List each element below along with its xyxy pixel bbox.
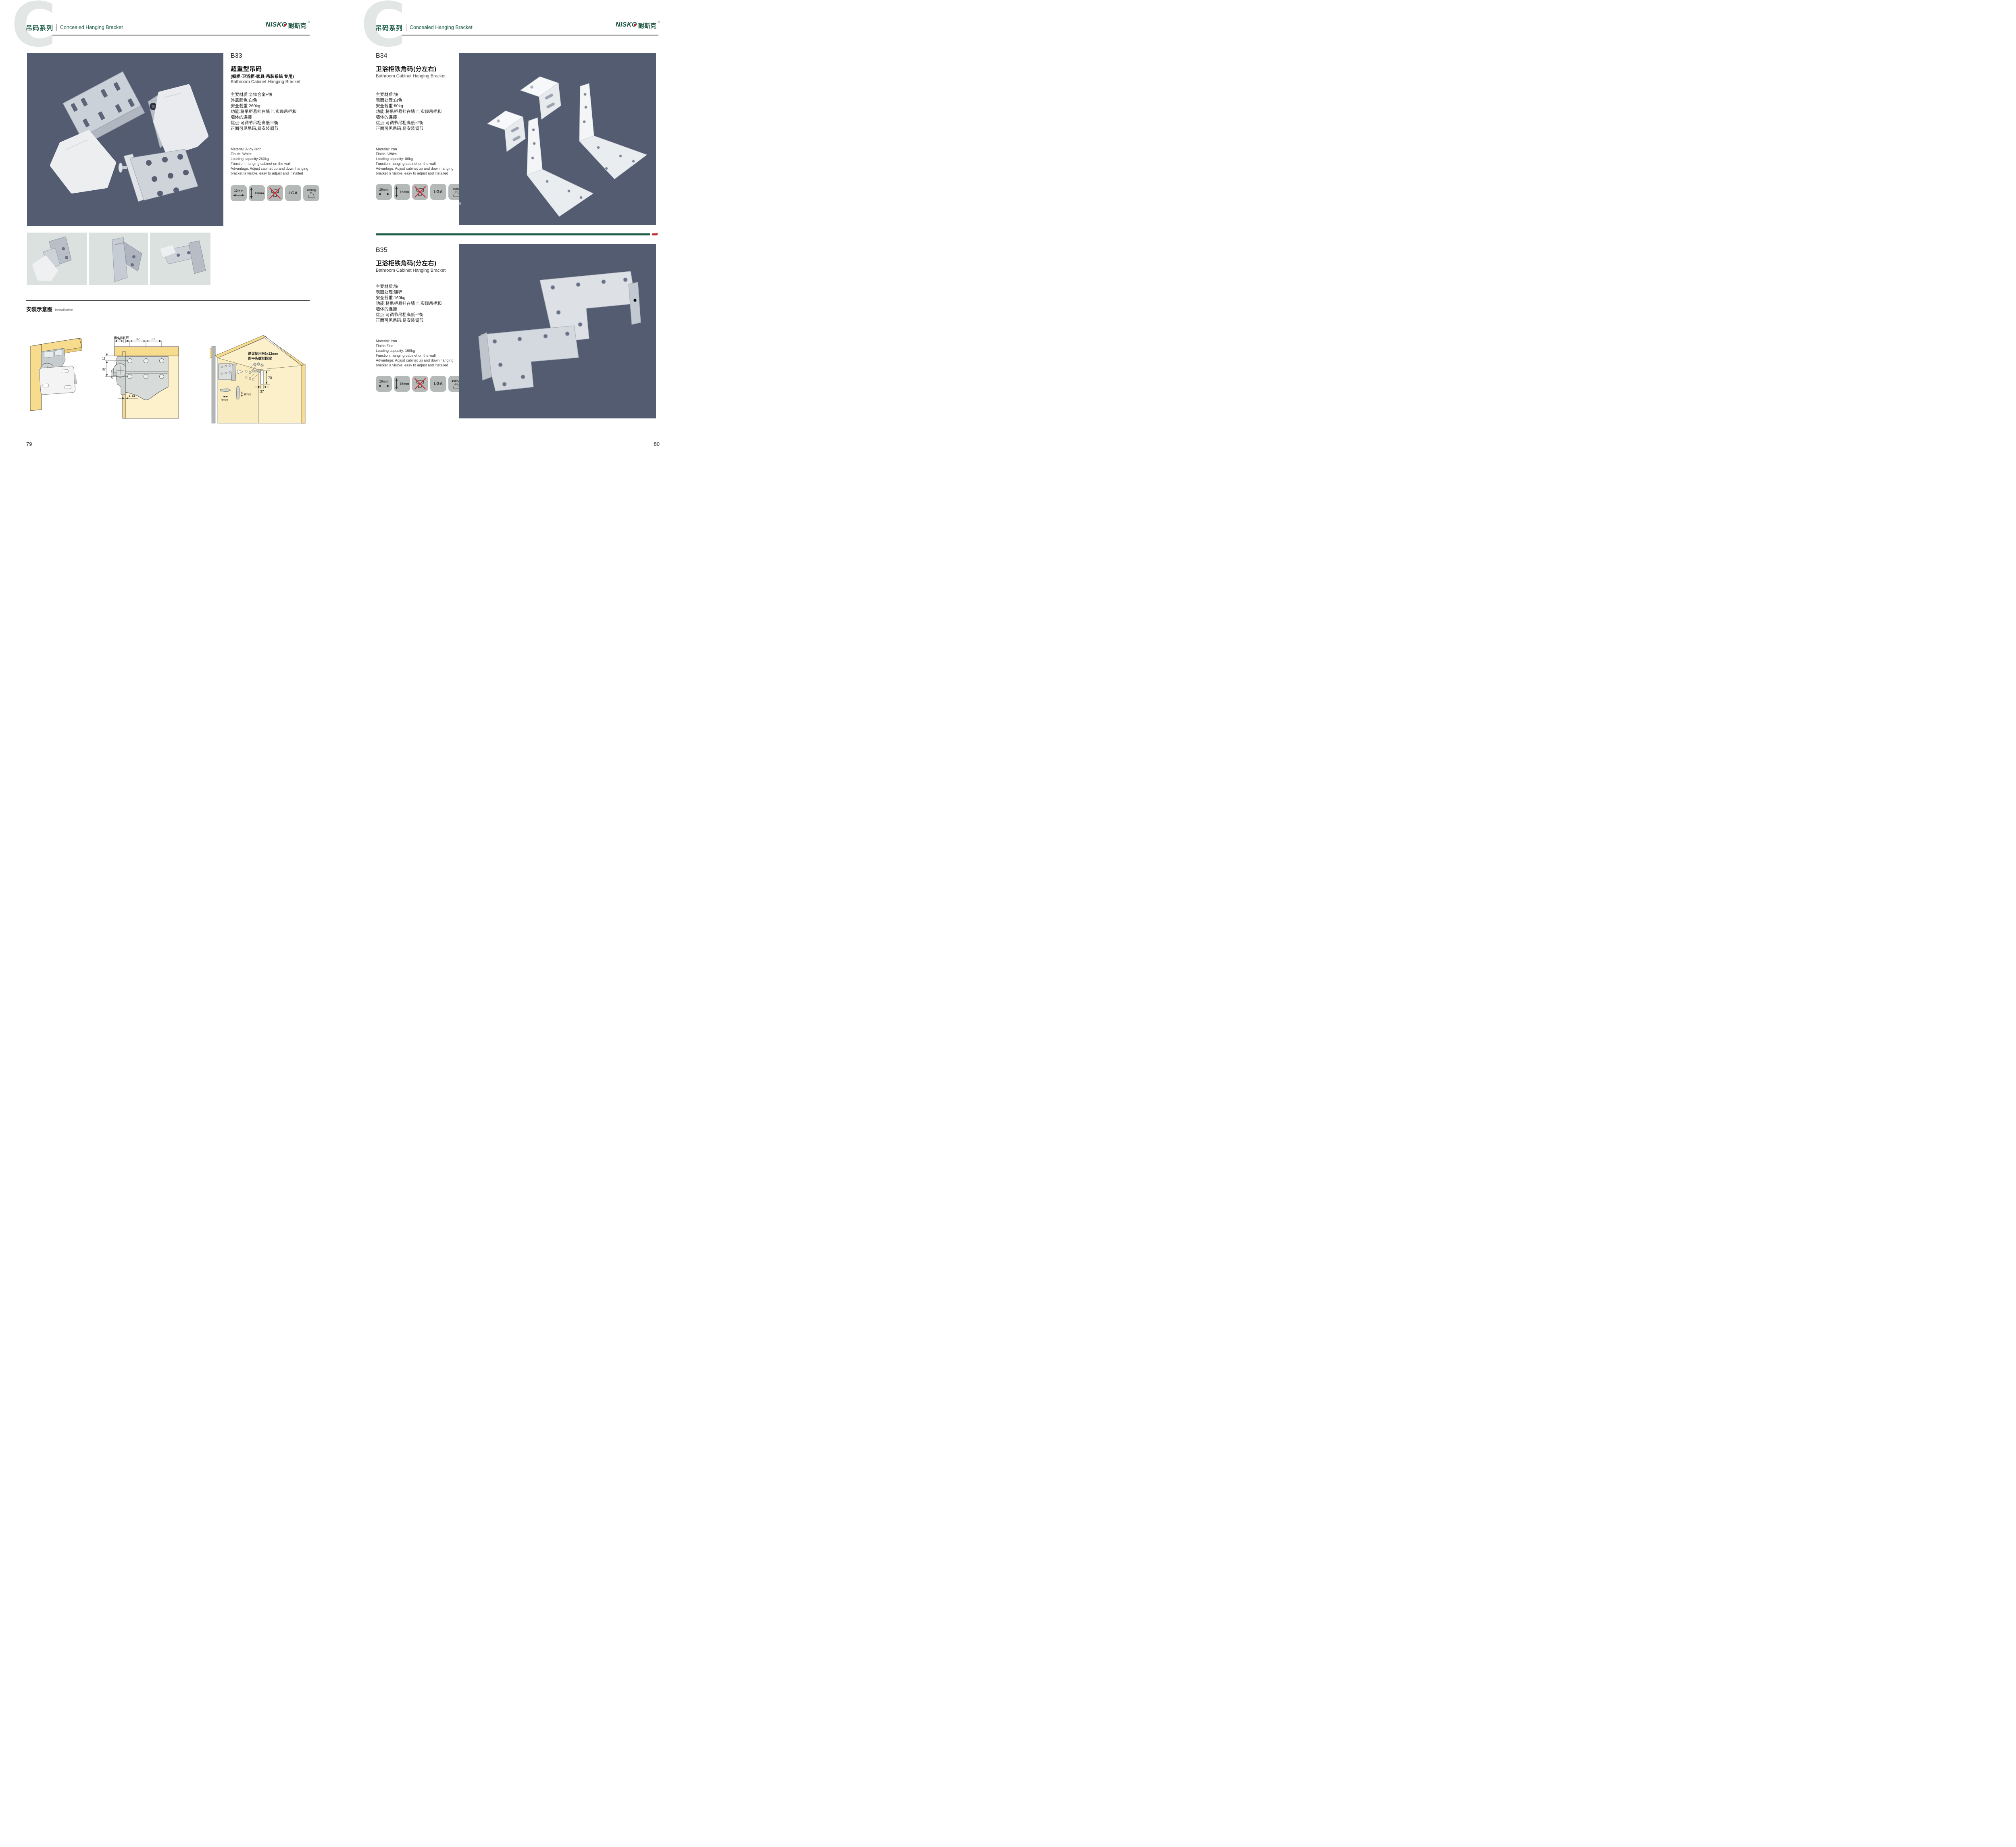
page-header: 吊码系列 Concealed Hanging Bracket — [375, 23, 473, 32]
no-drill-badge — [412, 184, 428, 200]
dim-11: 11 — [102, 357, 106, 360]
product-photo-b34 — [459, 53, 656, 225]
lga-cert-badge: LGA — [285, 185, 301, 201]
catalog-spread: C 吊码系列 Concealed Hanging Bracket NISKO 耐… — [0, 0, 676, 462]
feature-badges-b34: 10mm 15mm LGA 80Kg — [376, 184, 464, 200]
product-photo-b33 — [27, 53, 223, 226]
specs-cn: 主要材质:铁 表面处理:白色 安全载重:80kg 功能:将吊柜悬挂在墙上,实现吊… — [376, 92, 460, 131]
screw-note-line2: 的平头螺丝固定 — [248, 356, 272, 360]
screw-note-line1: 建议使用M6x12mm — [248, 352, 279, 356]
header-divider — [56, 24, 57, 31]
installation-diagram-perspective — [27, 338, 102, 423]
brand-red-dot-icon — [634, 24, 636, 26]
vertical-arrow-icon — [395, 186, 398, 198]
thumbnail-2 — [89, 233, 148, 285]
registered-mark: ® — [658, 21, 660, 24]
brand-name-cn: 耐斯克 — [288, 21, 306, 30]
header-rule — [52, 35, 310, 35]
crossed-drill-icon — [413, 185, 427, 199]
load-capacity-badge: 260Kg — [303, 185, 319, 201]
product-title-en: Bathroom Cabinet Hanging Bracket — [231, 79, 300, 84]
product-code: B35 — [376, 247, 387, 254]
installation-heading: 安装示意图 Installation — [26, 305, 73, 313]
horizontal-arrow-icon — [378, 384, 389, 388]
brand-wordmark: NISKO — [616, 21, 637, 29]
product-title-en: Bathroom Cabinet Hanging Bracket — [376, 268, 446, 273]
product-title-en: Bathroom Cabinet Hanging Bracket — [376, 74, 446, 79]
vertical-arrow-icon — [250, 187, 253, 199]
product-photo-b33-art — [27, 53, 223, 226]
header-divider — [406, 24, 406, 31]
product-title-cn: 超重型吊码 — [231, 64, 262, 73]
dim-range: 4-14 — [129, 394, 135, 398]
specs-en: Material: Iron Finish:Zinc Loading capac… — [376, 339, 462, 368]
dim-78: 78 — [268, 376, 272, 380]
dim-9a: 9mm — [221, 398, 228, 402]
panel-thickness-badge: 13mm — [249, 185, 265, 201]
specs-cn: 主要材质:铁 表面处理:镀锌 安全载重:160kg 功能:将吊柜悬挂在墙上,实现… — [376, 284, 460, 323]
product-subtitle-cn: (橱柜·卫浴柜·家具·吊装系统 专用) — [231, 73, 294, 79]
lga-cert-badge: LGA — [430, 184, 446, 200]
product-code: B34 — [376, 52, 387, 60]
series-title-en: Concealed Hanging Bracket — [60, 25, 123, 30]
page-number-right: 80 — [649, 441, 660, 447]
horizontal-arrow-icon — [233, 193, 244, 197]
series-title-en: Concealed Hanging Bracket — [410, 25, 473, 30]
lga-cert-badge: LGA — [430, 376, 446, 392]
dim-32b: 32 — [152, 337, 155, 341]
header-rule — [402, 35, 658, 35]
weight-icon — [306, 192, 317, 198]
specs-en: Material: Iron Finish: White Loading cap… — [376, 147, 462, 176]
crossed-drill-icon — [268, 186, 282, 200]
feature-badges-b33: 12mm 13mm LGA 260Kg — [231, 185, 319, 201]
dim-37: 37 — [260, 389, 264, 393]
feature-badges-b35: 10mm 15mm LGA 160KG — [376, 376, 464, 392]
no-drill-badge — [412, 376, 428, 392]
thumbnail-3 — [150, 233, 210, 285]
dim-32c: 32 — [102, 368, 106, 371]
panel-width-badge: 10mm — [376, 184, 392, 200]
section-divider-green — [376, 233, 650, 235]
brand-logo: NISKO 耐斯克 ® — [226, 21, 310, 30]
installation-rule — [26, 300, 310, 301]
product-title-cn: 卫浴柜铁角码(分左右) — [376, 259, 437, 267]
series-title-cn: 吊码系列 — [26, 23, 53, 32]
dim-32a: 32 — [136, 337, 140, 341]
vertical-arrow-icon — [395, 378, 398, 389]
dim-9b: 9mm — [244, 393, 251, 396]
panel-thickness-badge: 15mm — [394, 376, 410, 392]
brand-name-cn: 耐斯克 — [638, 21, 656, 30]
installation-heading-en: Installation — [55, 308, 73, 312]
product-photo-b35 — [459, 244, 656, 418]
brand-wordmark: NISKO — [266, 21, 287, 29]
dim-10: 10 — [125, 336, 129, 339]
panel-width-badge: 12mm — [231, 185, 247, 201]
page-number-left: 79 — [26, 441, 32, 447]
installation-diagram-cabinet: 建议使用M6x12mm 的平头螺丝固定 — [210, 335, 310, 424]
crossed-drill-icon — [413, 377, 427, 391]
no-drill-badge — [267, 185, 283, 201]
specs-cn: 主要材质:全锌合金+铁 外盖颜色:白色 安全载重:260kg 功能:将吊柜悬挂在… — [231, 92, 315, 131]
panel-width-badge: 10mm — [376, 376, 392, 392]
installation-heading-cn: 安装示意图 — [26, 305, 52, 313]
section-divider-red — [652, 233, 658, 235]
installation-diagram-section: 最小间距 20 10 32 32 — [99, 336, 184, 424]
thumbnail-1 — [27, 233, 87, 285]
brand-red-dot-icon — [284, 24, 286, 26]
product-title-cn: 卫浴柜铁角码(分左右) — [376, 64, 437, 73]
horizontal-arrow-icon — [378, 192, 389, 196]
specs-en: Material: Alloy+iron Finish: White Loadi… — [231, 147, 317, 176]
panel-thickness-badge: 15mm — [394, 184, 410, 200]
registered-mark: ® — [308, 21, 310, 24]
series-title-cn: 吊码系列 — [375, 23, 403, 32]
page-header: 吊码系列 Concealed Hanging Bracket — [26, 23, 123, 32]
brand-logo: NISKO 耐斯克 ® — [576, 21, 660, 30]
product-photo-b35-art — [459, 244, 656, 418]
product-photo-b34-art — [459, 53, 656, 225]
product-code: B33 — [231, 52, 242, 60]
dim-20: 20 — [117, 337, 121, 341]
